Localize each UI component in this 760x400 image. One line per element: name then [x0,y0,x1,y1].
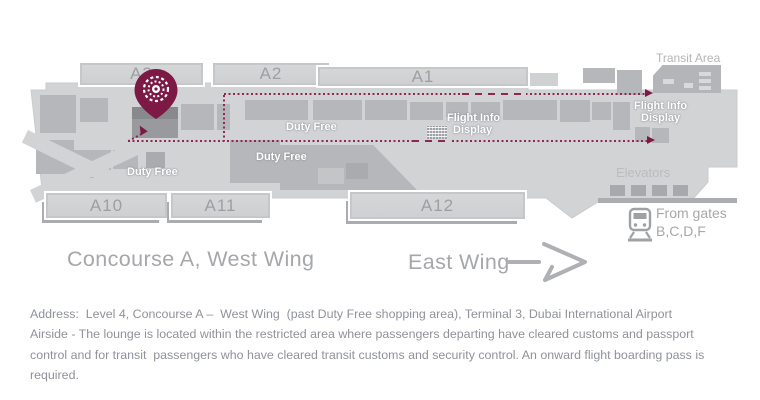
transit-desk [684,83,693,88]
transit-area-label: Transit Area [656,51,720,65]
airport-map-page: Transit Area Elevators A3 A2 A1 A10 A11 … [0,0,760,400]
flight-info-label: Flight Info [447,112,500,124]
route-dashed-top [224,93,648,95]
route-dashed-bottom [128,140,651,142]
shop-block [410,102,443,120]
shop-block [313,100,362,120]
transit-desk [699,79,711,83]
west-wing-title: Concourse A, West Wing [67,247,314,272]
gate-pier-a11: A11 [171,193,270,218]
transit-area-block [653,65,721,93]
transit-desk [699,72,711,76]
address-line: required. [30,365,740,385]
shop-block [80,98,108,122]
gate-pier-a1: A1 [318,67,528,86]
shop-block [245,100,308,120]
duty-free-label: Duty Free [286,121,337,133]
floor-edge [598,198,737,203]
shop-block [346,163,368,179]
location-pin-icon [133,68,179,120]
duty-free-label: Duty Free [256,151,307,163]
gate-label-a2: A2 [260,64,283,84]
gate-label-a10: A10 [90,196,123,216]
duty-free-label: Duty Free [127,166,178,178]
address-line: Address: Level 4, Concourse A – West Win… [30,304,740,324]
east-wing-title: East Wing [408,250,510,275]
flight-info-label: Display [453,124,492,136]
pier-step [528,73,558,86]
elevator-square [610,185,625,196]
train-icon [626,207,654,243]
route-dashed-bottom-long [412,140,450,142]
address-paragraph: Address: Level 4, Concourse A – West Win… [30,304,740,386]
route-arrowhead-icon [645,89,653,97]
shop-block [40,95,76,133]
flight-info-board-icon [427,126,447,139]
shop-block [365,100,407,120]
transit-desk [699,86,711,90]
east-wing-arrow-icon [506,236,590,286]
flight-info-label: Flight Info [634,100,687,112]
shop-block [560,100,590,122]
elevator-square [652,185,667,196]
flight-info-label: Display [641,112,680,124]
shop-block [592,102,611,120]
gate-label-a11: A11 [205,196,237,216]
shop-block [613,102,630,130]
address-line: Airside - The lounge is located within t… [30,324,740,344]
gate-label-a12: A12 [421,196,454,216]
transit-desk [663,79,674,84]
elevator-square [631,185,646,196]
shop-block [617,70,642,95]
route-dashed-connector [223,95,225,141]
elevator-square [673,185,688,196]
shop-block [318,168,344,184]
elevators-label: Elevators [616,165,670,180]
from-gates-text: From gates [656,205,727,221]
from-gates-list: B,C,D,F [656,223,706,239]
gate-pier-a2: A2 [213,63,329,85]
address-line: control and for transit passengers who h… [30,345,740,365]
shop-block [503,100,557,120]
shop-block [181,104,214,130]
route-dashed-top-long [462,93,526,95]
route-arrowhead-icon [647,136,655,144]
shop-block [583,68,615,83]
gate-label-a1: A1 [412,67,435,87]
gate-pier-a10: A10 [46,193,167,218]
gate-pier-a12: A12 [350,192,525,219]
